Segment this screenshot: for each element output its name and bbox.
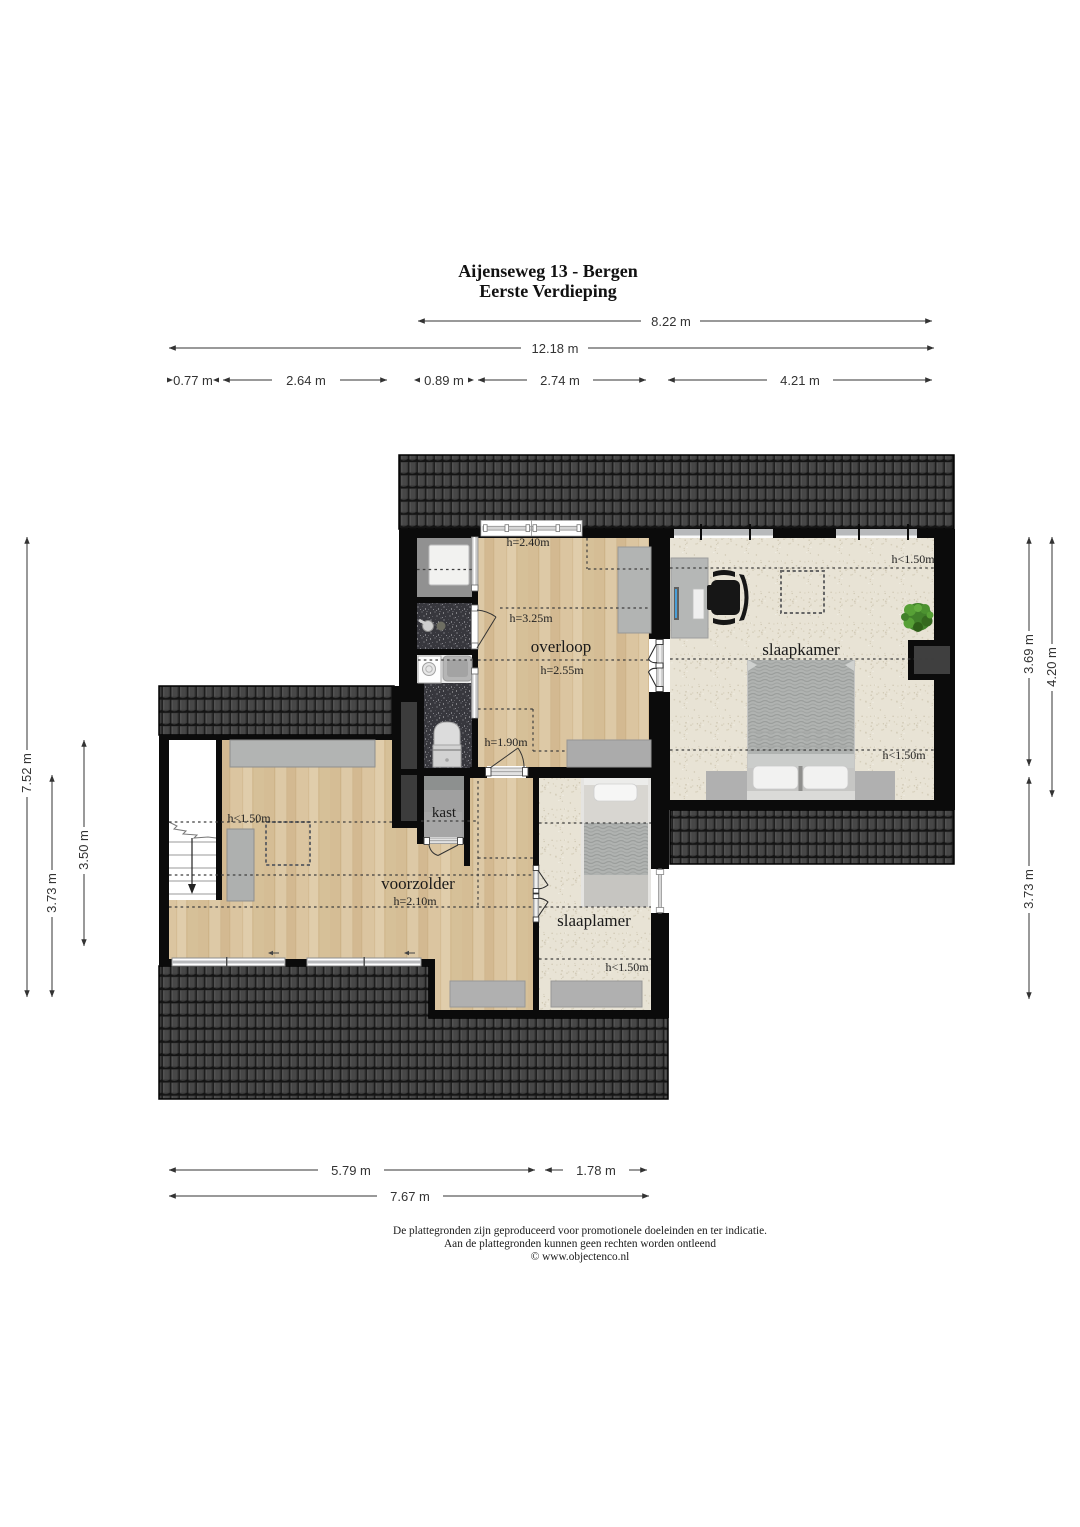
svg-text:7.52 m: 7.52 m	[19, 753, 34, 793]
svg-text:Aan de plattegronden kunnen ge: Aan de plattegronden kunnen geen rechten…	[444, 1238, 716, 1250]
svg-text:3.73 m: 3.73 m	[1021, 869, 1036, 909]
svg-text:h=1.90m: h=1.90m	[484, 735, 528, 749]
svg-text:h<1.50m: h<1.50m	[882, 748, 926, 762]
svg-text:2.74 m: 2.74 m	[540, 373, 580, 388]
svg-text:© www.objectenco.nl: © www.objectenco.nl	[531, 1251, 630, 1263]
svg-text:5.79 m: 5.79 m	[331, 1163, 371, 1178]
svg-text:overloop: overloop	[531, 637, 591, 656]
svg-text:8.22 m: 8.22 m	[651, 314, 691, 329]
svg-text:4.20 m: 4.20 m	[1044, 647, 1059, 687]
svg-text:De plattegronden zijn geproduc: De plattegronden zijn geproduceerd voor …	[393, 1225, 767, 1237]
svg-text:h=3.25m: h=3.25m	[509, 611, 553, 625]
svg-text:0.89 m: 0.89 m	[424, 373, 464, 388]
svg-text:h<1.50m: h<1.50m	[891, 552, 935, 566]
svg-text:0.77 m: 0.77 m	[173, 373, 213, 388]
svg-text:h=2.55m: h=2.55m	[540, 663, 584, 677]
svg-text:Eerste Verdieping: Eerste Verdieping	[479, 281, 617, 301]
svg-text:h=2.40m: h=2.40m	[506, 535, 550, 549]
svg-text:h<1.50m: h<1.50m	[227, 811, 271, 825]
svg-text:kast: kast	[432, 805, 457, 821]
svg-text:voorzolder: voorzolder	[381, 874, 455, 893]
svg-text:3.69 m: 3.69 m	[1021, 634, 1036, 674]
svg-text:Aijenseweg 13 - Bergen: Aijenseweg 13 - Bergen	[458, 261, 637, 281]
svg-text:7.67 m: 7.67 m	[390, 1189, 430, 1204]
svg-text:3.73 m: 3.73 m	[44, 873, 59, 913]
svg-text:slaapkamer: slaapkamer	[762, 640, 840, 659]
svg-text:h=2.10m: h=2.10m	[393, 894, 437, 908]
svg-text:1.78 m: 1.78 m	[576, 1163, 616, 1178]
svg-text:12.18 m: 12.18 m	[532, 341, 579, 356]
svg-text:3.50 m: 3.50 m	[76, 830, 91, 870]
svg-text:h<1.50m: h<1.50m	[605, 960, 649, 974]
svg-text:4.21 m: 4.21 m	[780, 373, 820, 388]
svg-text:2.64 m: 2.64 m	[286, 373, 326, 388]
svg-text:slaaplamer: slaaplamer	[557, 911, 631, 930]
